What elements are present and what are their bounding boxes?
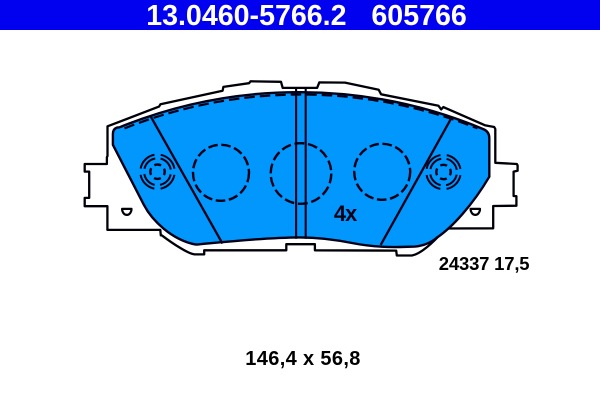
svg-text:605766: 605766 [371,0,466,32]
svg-text:146,4 x 56,8: 146,4 x 56,8 [245,348,360,370]
svg-text:24337 17,5: 24337 17,5 [439,253,530,274]
svg-text:13.0460-5766.2: 13.0460-5766.2 [146,0,346,32]
svg-text:4x: 4x [334,201,357,226]
